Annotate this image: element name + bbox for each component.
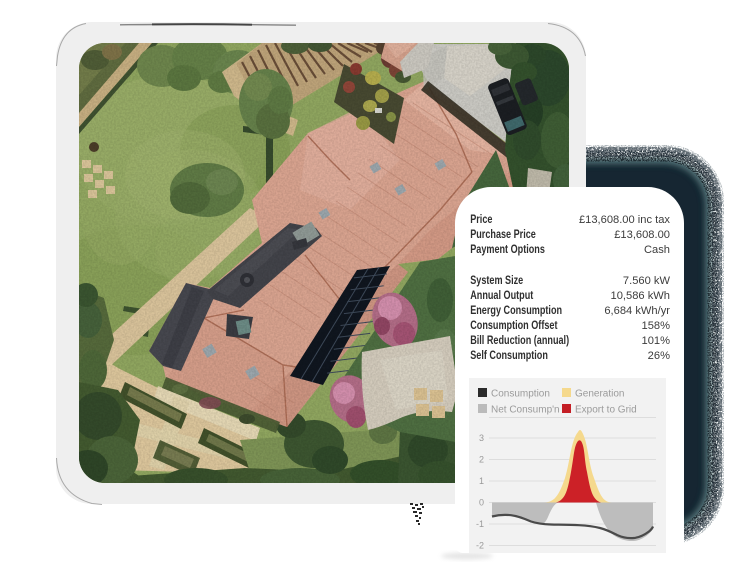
svg-text:Generation: Generation: [575, 389, 624, 400]
svg-text:Purchase Price: Purchase Price: [470, 229, 536, 241]
svg-text:Consumption: Consumption: [491, 389, 550, 400]
svg-text:26%: 26%: [648, 350, 670, 362]
svg-text:158%: 158%: [642, 320, 670, 332]
svg-text:0: 0: [479, 498, 484, 508]
svg-text:Self Consumption: Self Consumption: [470, 350, 548, 362]
svg-text:System Size: System Size: [470, 275, 523, 287]
svg-text:Net Consump'n: Net Consump'n: [491, 405, 560, 416]
svg-text:-1: -1: [476, 519, 484, 529]
svg-text:-2: -2: [476, 541, 484, 551]
svg-text:Cash: Cash: [644, 244, 670, 256]
svg-text:6,684 kWh/yr: 6,684 kWh/yr: [604, 305, 670, 317]
svg-text:Bill Reduction (annual): Bill Reduction (annual): [470, 335, 569, 347]
svg-text:2: 2: [479, 455, 484, 465]
svg-text:101%: 101%: [642, 335, 670, 347]
svg-text:3: 3: [479, 433, 484, 443]
svg-text:Payment Options: Payment Options: [470, 244, 545, 256]
svg-text:Price: Price: [470, 214, 492, 226]
svg-text:£13,608.00: £13,608.00: [614, 229, 670, 241]
svg-text:£13,608.00 inc tax: £13,608.00 inc tax: [579, 214, 670, 226]
svg-text:1: 1: [479, 476, 484, 486]
svg-text:Annual Output: Annual Output: [470, 290, 534, 302]
svg-text:7.560 kW: 7.560 kW: [623, 275, 670, 287]
svg-text:10,586 kWh: 10,586 kWh: [611, 290, 670, 302]
svg-text:Export to Grid: Export to Grid: [575, 405, 637, 416]
svg-text:Consumption Offset: Consumption Offset: [470, 320, 558, 332]
svg-text:Energy Consumption: Energy Consumption: [470, 305, 562, 317]
